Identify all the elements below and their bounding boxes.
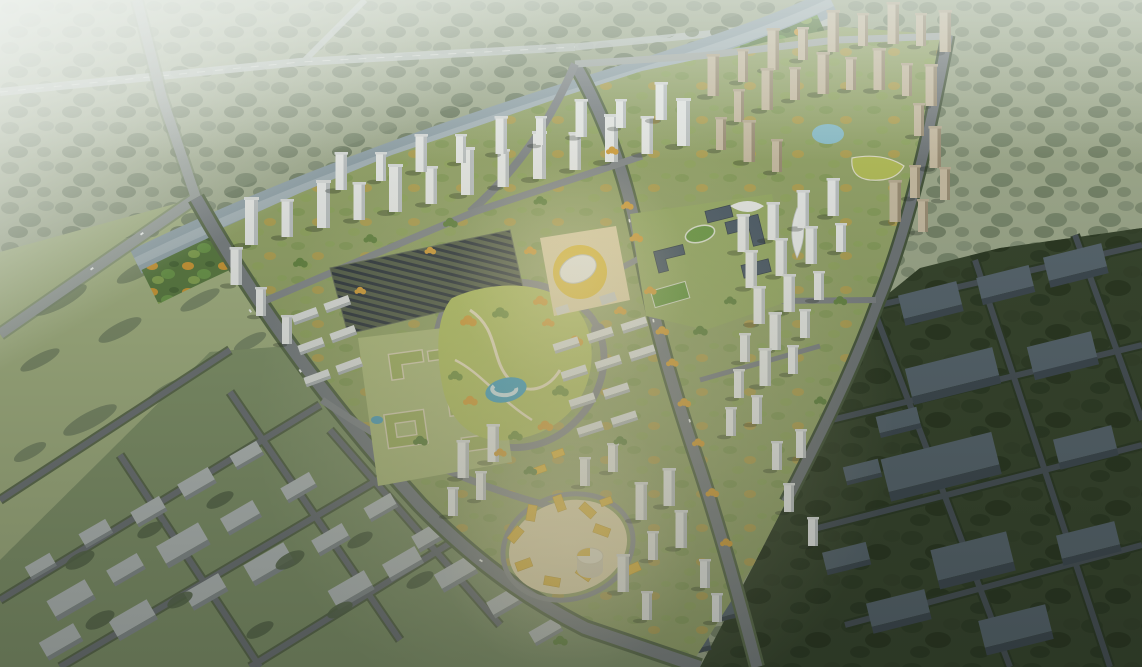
aerial-masterplan-rendering — [0, 0, 1142, 667]
corner-haze — [0, 0, 1142, 667]
screenshot-canvas — [0, 0, 1142, 667]
lighting-and-haze — [0, 0, 1142, 667]
